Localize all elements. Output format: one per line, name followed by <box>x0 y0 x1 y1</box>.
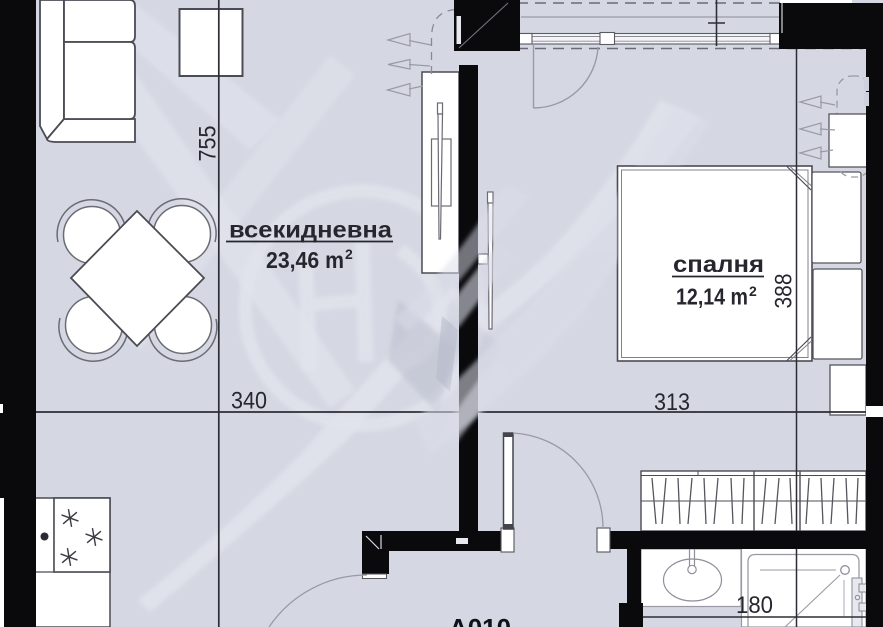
svg-text:2: 2 <box>749 283 757 299</box>
svg-text:388: 388 <box>771 274 798 309</box>
svg-text:А010: А010 <box>449 613 511 627</box>
svg-text:всекидневна: всекидневна <box>229 217 392 243</box>
svg-text:23,46 m: 23,46 m <box>266 247 344 273</box>
svg-text:755: 755 <box>195 126 222 162</box>
svg-text:спалня: спалня <box>673 251 764 277</box>
svg-text:2: 2 <box>345 246 353 262</box>
svg-text:12,14 m: 12,14 m <box>676 284 748 310</box>
svg-text:340: 340 <box>231 388 267 415</box>
svg-text:180: 180 <box>736 592 773 619</box>
svg-text:313: 313 <box>654 389 690 416</box>
